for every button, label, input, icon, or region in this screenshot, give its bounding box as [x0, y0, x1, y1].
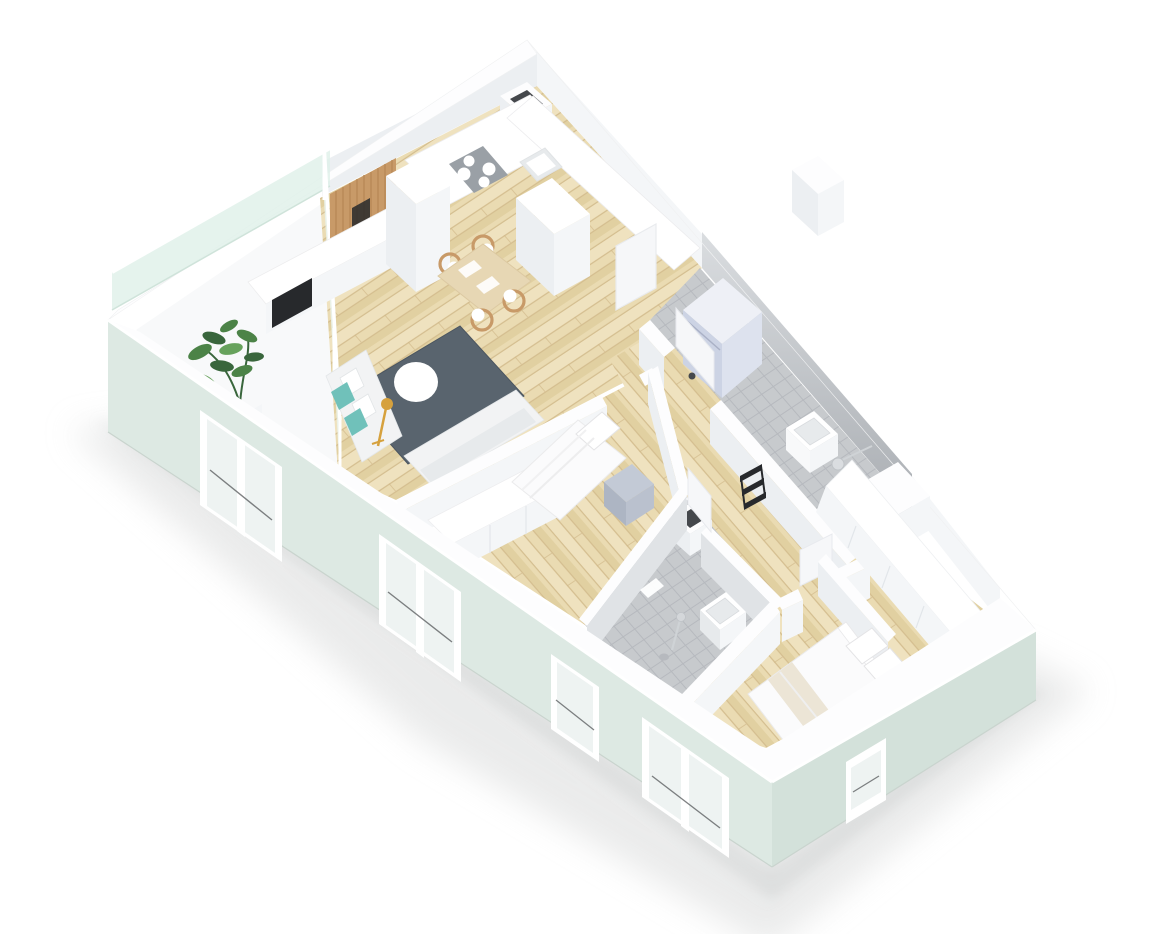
floor-plan-canvas	[0, 0, 1170, 934]
burner	[479, 177, 490, 188]
coffee-table	[394, 362, 438, 402]
tall-cabinet-1	[386, 158, 450, 292]
washer-door	[689, 373, 696, 380]
floor-plan-stage: 3D isometric floor plan rendering of a t…	[0, 0, 1170, 934]
burner	[483, 163, 496, 176]
burner	[458, 168, 471, 181]
burner	[464, 156, 475, 167]
entry-shaft-block	[792, 156, 844, 236]
